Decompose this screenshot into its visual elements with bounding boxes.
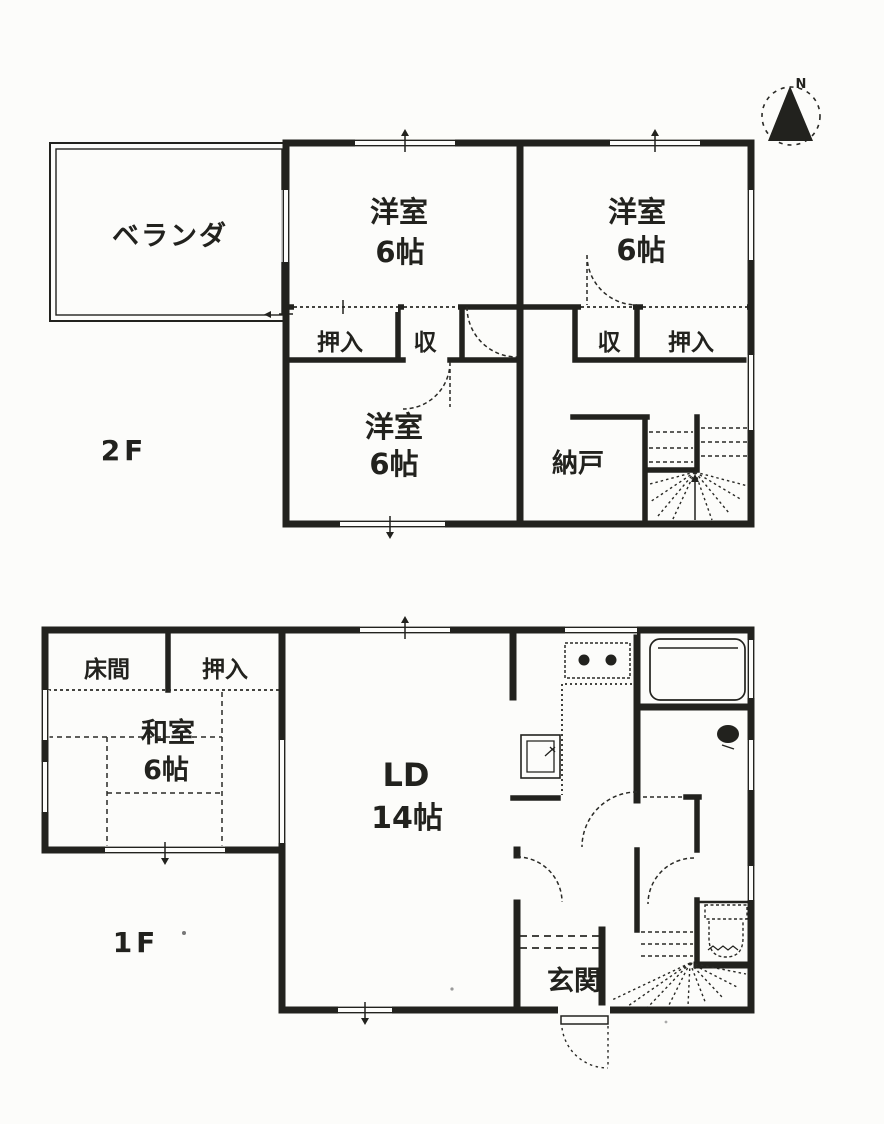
closet-2f-west-label: 押入 (317, 330, 363, 356)
floor2-plan: ベランダ 洋室 6帖 洋室 6帖 押入 収 収 押入 洋室 6帖 納戸 2F (50, 129, 756, 539)
closet-1f-label: 押入 (202, 657, 248, 683)
stair-treads-1f (641, 932, 693, 956)
floorplan-page: N ベランダ 洋室 6帖 洋室 6帖 押入 収 収 押入 (0, 0, 884, 1124)
stove-burner-icon (579, 655, 590, 666)
stove-icon (565, 643, 630, 678)
sink-faucet-icon (527, 741, 555, 772)
stair-fan-2f (650, 472, 748, 521)
room-2f-sw-name: 洋室 (365, 410, 423, 444)
front-door-gap (558, 1006, 610, 1015)
storeroom-2f-label: 納戸 (552, 448, 604, 479)
compass: N (762, 77, 820, 145)
floor2-label: 2F (101, 434, 148, 467)
room-2f-ne-size: 6帖 (616, 233, 665, 267)
compass-n-label: N (796, 77, 807, 92)
front-door-arc (562, 1026, 608, 1068)
ld-name: LD (383, 756, 430, 794)
north-arrow-icon (768, 86, 813, 141)
toilet-icon (705, 905, 747, 957)
stove-burner-icon-2 (606, 655, 617, 666)
floor1-label: 1F (113, 926, 160, 959)
ld-size: 14帖 (371, 801, 443, 836)
tatami-lines (48, 692, 222, 847)
washitsu-name: 和室 (141, 717, 195, 749)
room-2f-nw-name: 洋室 (370, 195, 428, 229)
washitsu-size: 6帖 (143, 755, 189, 786)
washbasin-icon (717, 725, 739, 743)
veranda-label: ベランダ (112, 220, 228, 252)
closet-2f-east-label: 押入 (668, 330, 714, 356)
room-2f-ne-name: 洋室 (608, 195, 666, 229)
kitchen-counter-dots (562, 684, 634, 795)
floor-plan-svg: N ベランダ 洋室 6帖 洋室 6帖 押入 収 収 押入 (0, 0, 884, 1124)
genkan-step-lines (520, 936, 599, 948)
washbasin-tap (722, 745, 734, 749)
floor1-plan: 床間 押入 和室 6帖 LD 14帖 玄関 1F (41, 616, 756, 1068)
stair-fan-1f (612, 963, 746, 1007)
room-2f-nw-size: 6帖 (375, 235, 424, 269)
storage-2f-east-label: 収 (598, 330, 622, 356)
front-door-leaf (561, 1016, 608, 1024)
door-arcs-1f (517, 792, 694, 904)
tokonoma-label: 床間 (84, 656, 130, 683)
genkan-label: 玄関 (547, 965, 601, 997)
storage-2f-west-label: 収 (414, 330, 438, 356)
room-2f-sw-size: 6帖 (369, 447, 418, 481)
